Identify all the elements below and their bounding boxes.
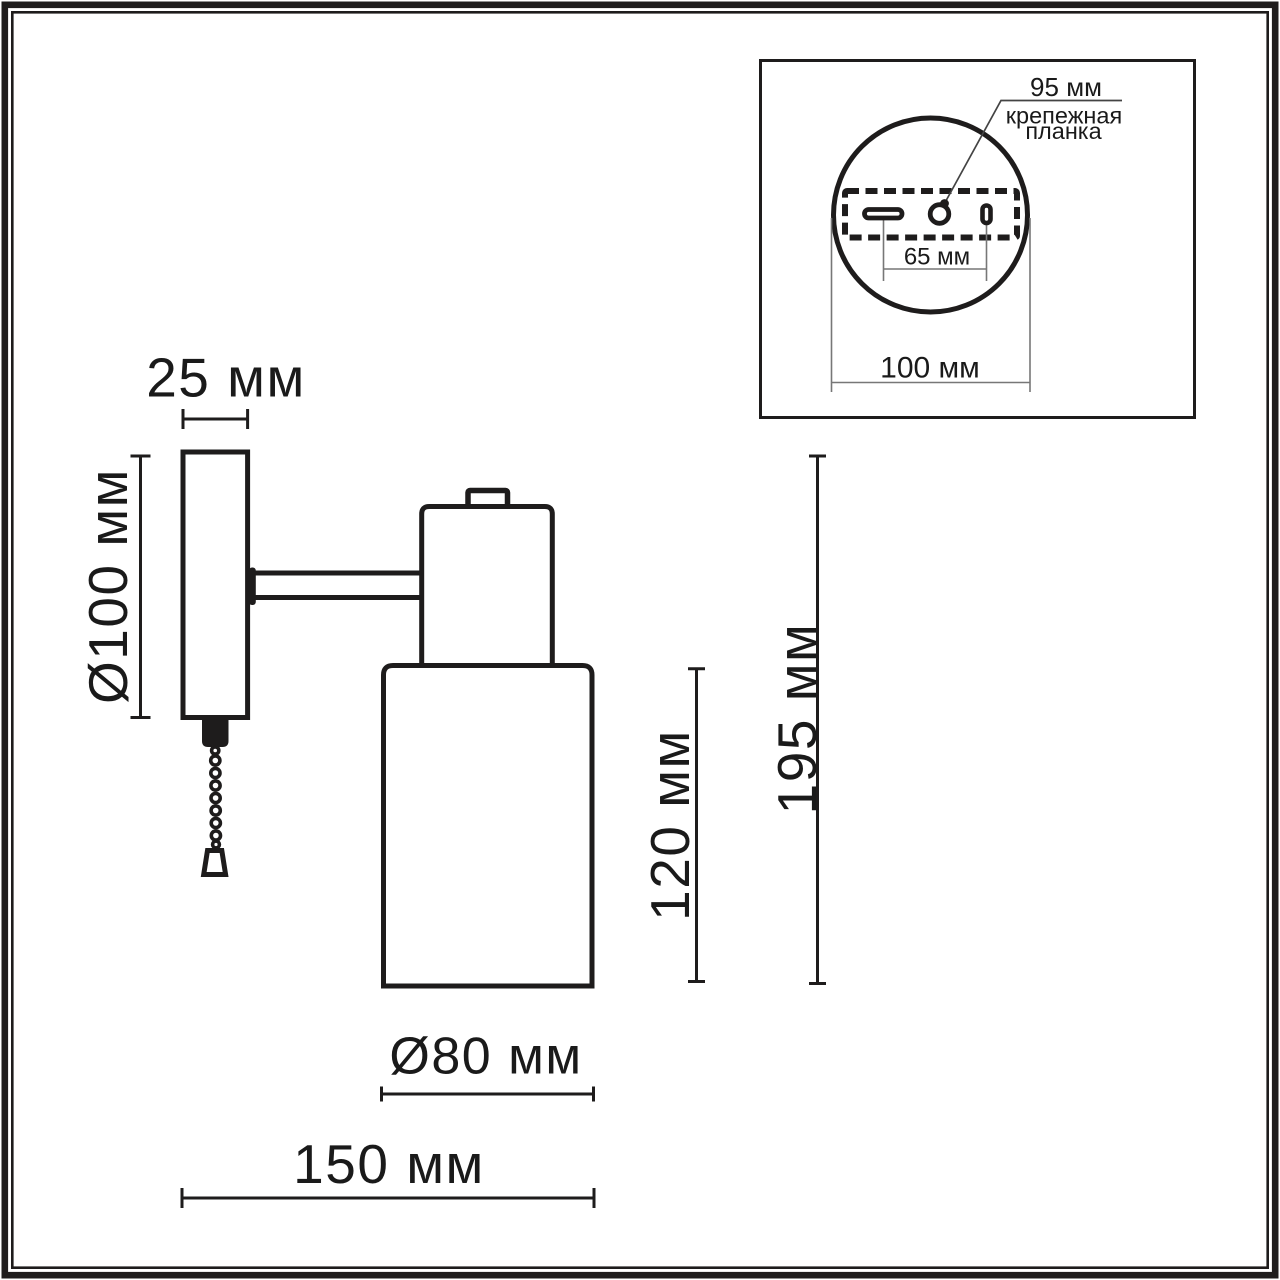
svg-text:Ø80 мм: Ø80 мм: [389, 1028, 582, 1086]
svg-text:Ø100 мм: Ø100 мм: [77, 468, 139, 704]
svg-text:65 мм: 65 мм: [904, 244, 970, 271]
svg-text:195 мм: 195 мм: [766, 623, 828, 815]
svg-text:25 мм: 25 мм: [146, 347, 306, 409]
svg-text:150 мм: 150 мм: [293, 1133, 485, 1195]
svg-text:95 мм: 95 мм: [1030, 72, 1102, 102]
svg-text:100 мм: 100 мм: [880, 352, 980, 385]
svg-text:планка: планка: [1025, 118, 1102, 144]
svg-text:120 мм: 120 мм: [639, 729, 701, 921]
